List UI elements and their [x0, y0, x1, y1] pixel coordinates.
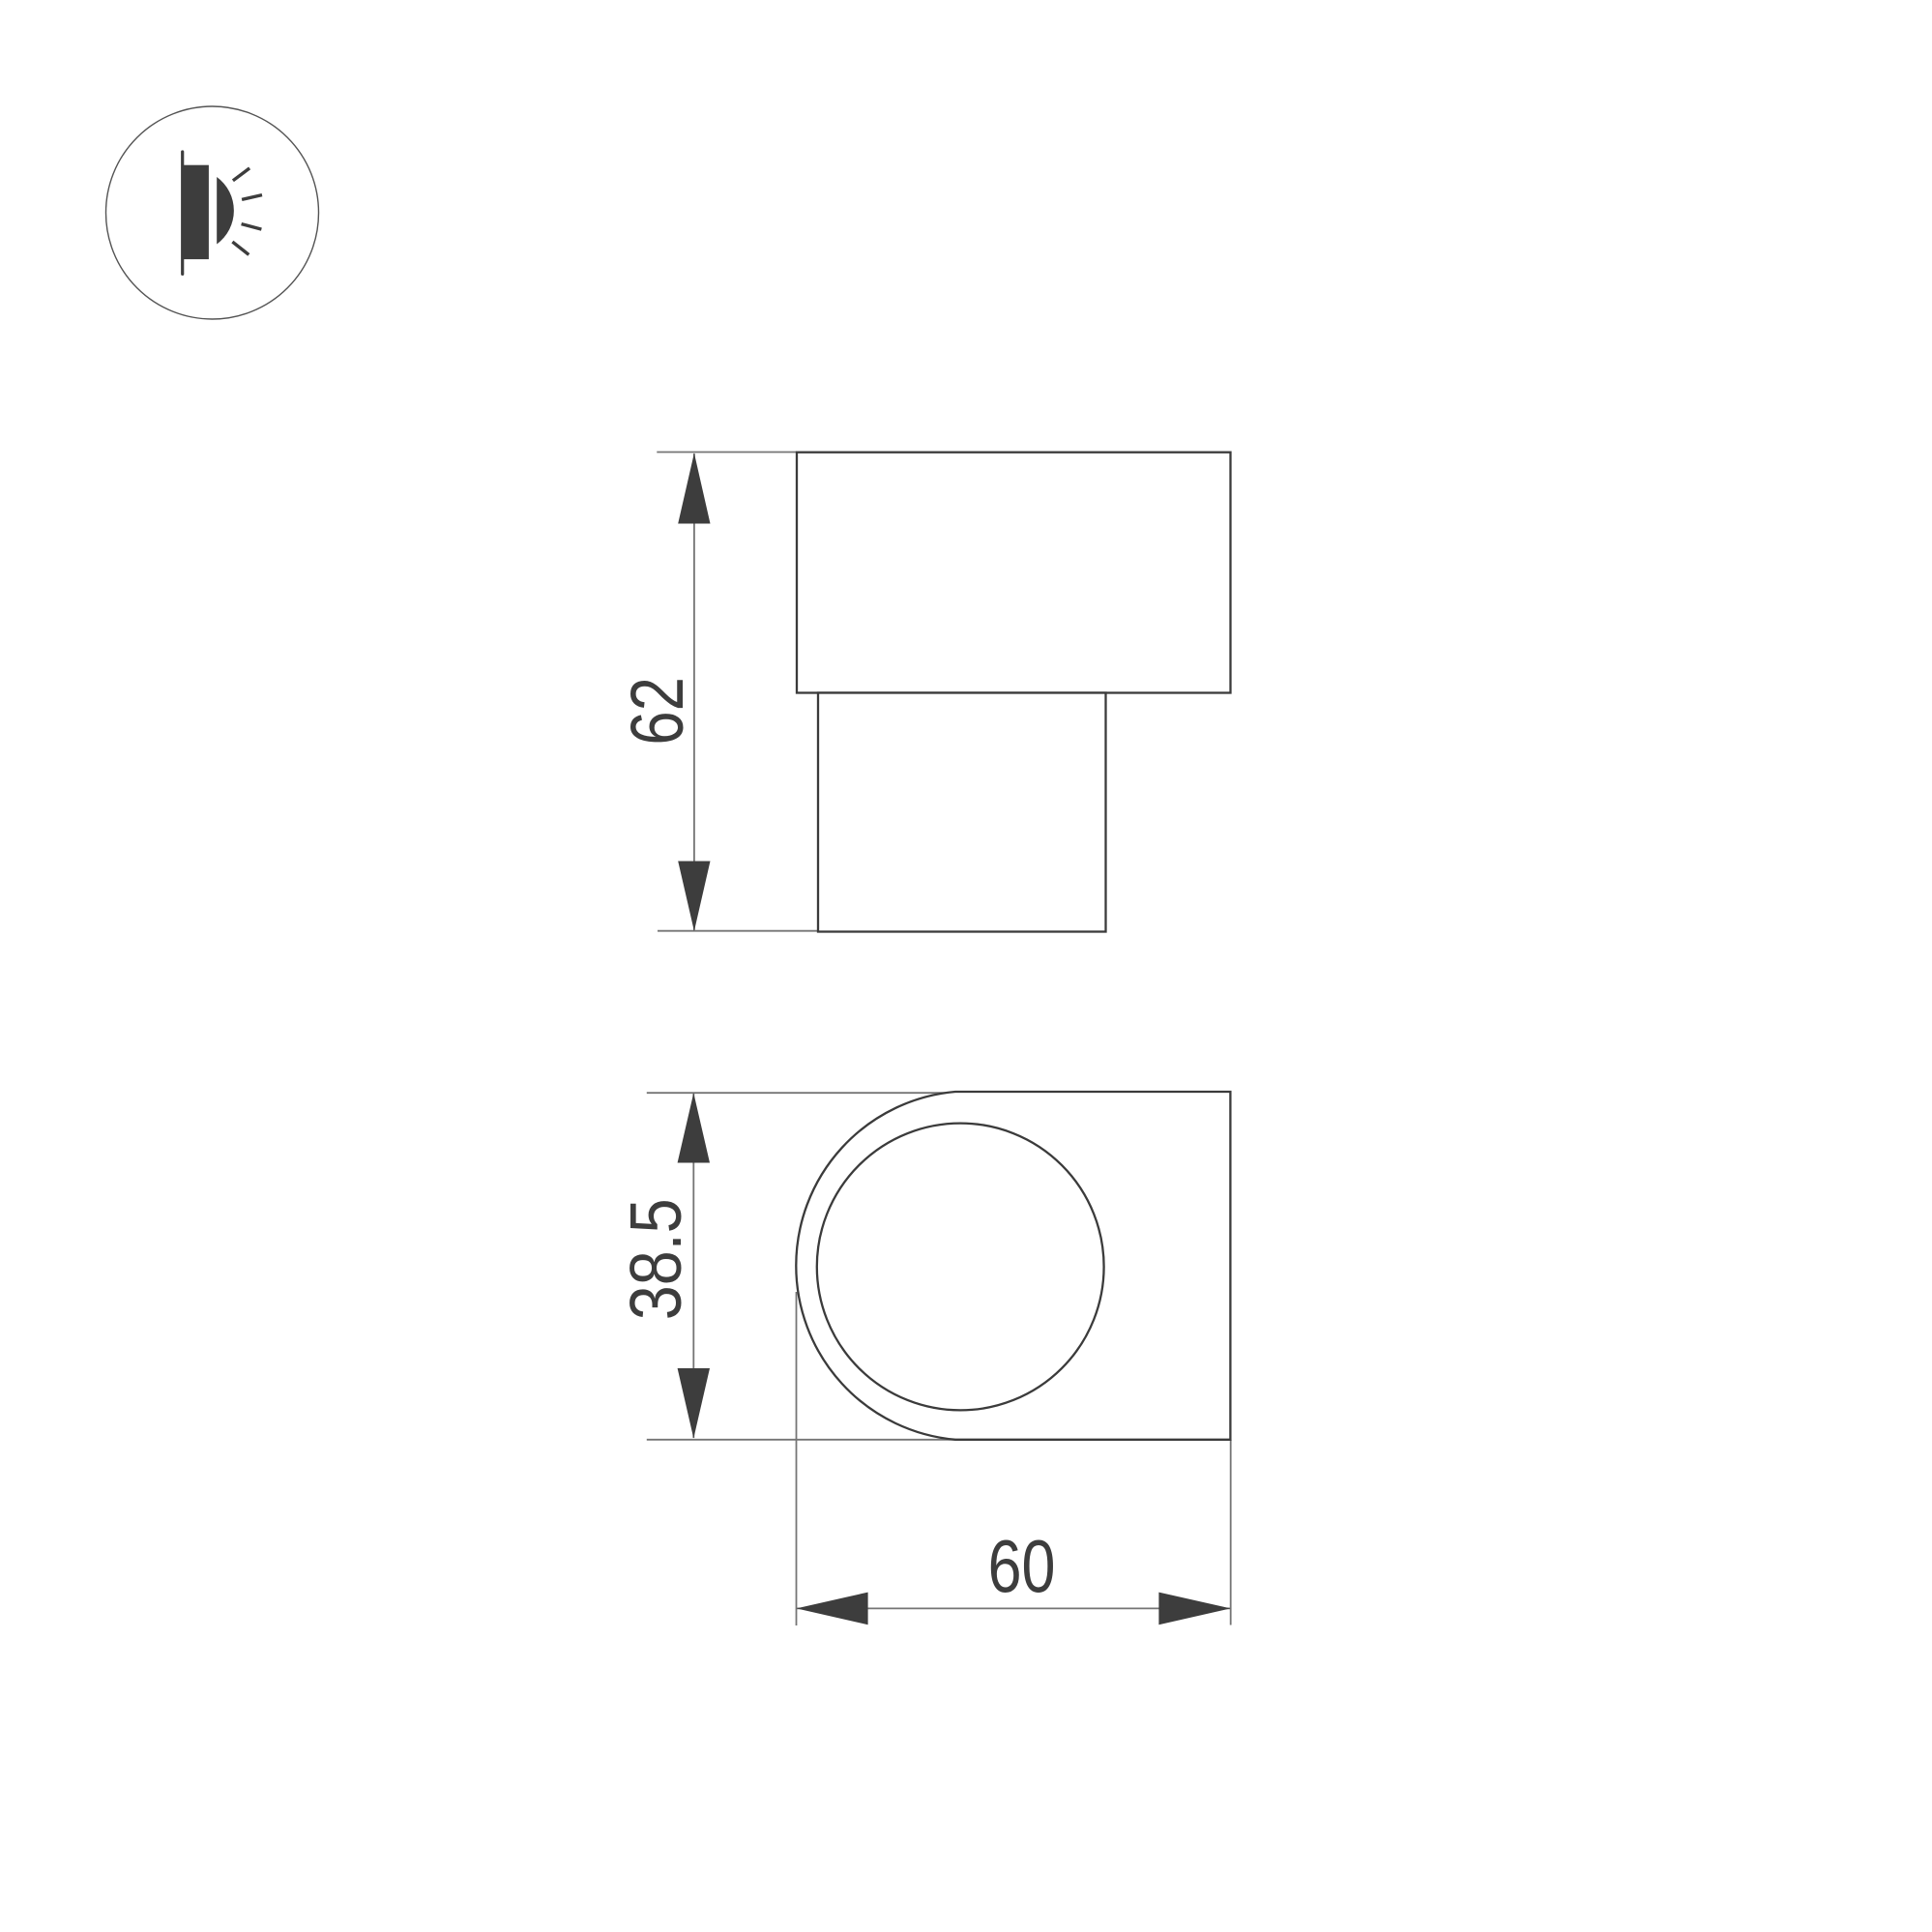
svg-text:62: 62 [615, 677, 698, 746]
svg-text:60: 60 [988, 1525, 1056, 1607]
svg-text:38.5: 38.5 [616, 1199, 697, 1321]
